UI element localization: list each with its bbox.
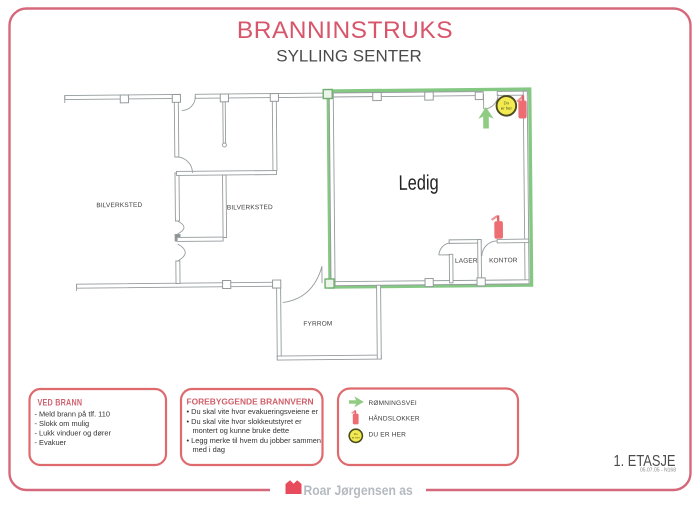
svg-text:DU ER HER: DU ER HER [369, 432, 407, 439]
svg-text:- Slokk om mulig: - Slokk om mulig [35, 419, 90, 428]
svg-text:- Meld brann på tlf. 110: - Meld brann på tlf. 110 [35, 410, 110, 419]
svg-text:• Du skal vite hvor slokkeutst: • Du skal vite hvor slokkeutstyret er [187, 417, 303, 426]
svg-text:montert og kunne bruke dette: montert og kunne bruke dette [193, 426, 290, 435]
svg-text:- Lukk vinduer og dører: - Lukk vinduer og dører [35, 429, 112, 438]
svg-text:LAGER: LAGER [455, 258, 478, 265]
svg-text:Ledig: Ledig [398, 171, 438, 195]
svg-text:er her: er her [352, 436, 360, 440]
svg-text:Du: Du [504, 100, 510, 105]
svg-text:• Du skal vite hvor evakuering: • Du skal vite hvor evakueringsveiene er [187, 407, 319, 416]
svg-text:FYRROM: FYRROM [303, 320, 332, 327]
svg-text:SYLLING SENTER: SYLLING SENTER [276, 47, 422, 66]
svg-text:BILVERKSTED: BILVERKSTED [96, 202, 142, 209]
svg-text:RØMNINGSVEI: RØMNINGSVEI [369, 400, 417, 407]
svg-text:KONTOR: KONTOR [489, 257, 518, 264]
svg-text:FOREBYGGENDE BRANNVERN: FOREBYGGENDE BRANNVERN [187, 396, 314, 406]
svg-text:HÅNDSLOKKER: HÅNDSLOKKER [369, 413, 420, 422]
svg-text:BILVERKSTED: BILVERKSTED [227, 204, 273, 211]
svg-text:er her: er her [501, 106, 513, 111]
svg-text:- Evakuer: - Evakuer [35, 438, 67, 447]
svg-text:VED BRANN: VED BRANN [38, 398, 83, 408]
svg-text:Roar Jørgensen as: Roar Jørgensen as [304, 482, 413, 498]
svg-text:05.07.05 - N168: 05.07.05 - N168 [640, 468, 676, 474]
svg-text:med i dag: med i dag [193, 445, 225, 454]
svg-text:BRANNINSTRUKS: BRANNINSTRUKS [237, 17, 453, 44]
svg-text:• Legg merke til hvem du jobbe: • Legg merke til hvem du jobber sammen [187, 436, 321, 445]
